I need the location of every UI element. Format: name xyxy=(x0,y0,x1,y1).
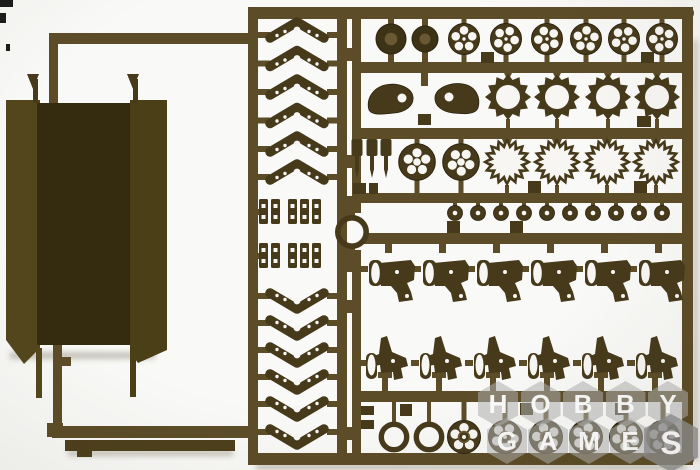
sprue-stub xyxy=(598,378,604,392)
bracket-slot xyxy=(533,263,542,284)
clip-notch xyxy=(262,215,266,219)
wheel-hole xyxy=(407,165,416,174)
clip-notch xyxy=(315,259,319,263)
hull-panel-left xyxy=(6,100,40,364)
wheel-hole xyxy=(586,42,595,51)
wheel-center-hole xyxy=(622,37,625,40)
chevron-hole xyxy=(283,58,286,61)
chevron-hole xyxy=(315,430,318,433)
clip-notch xyxy=(303,248,307,252)
left-side-tab xyxy=(62,357,71,366)
chevron-hole xyxy=(315,375,318,378)
wheel-center-hole xyxy=(544,435,548,439)
clip-part xyxy=(312,243,321,268)
wheel-center-hole xyxy=(457,158,465,166)
wheel-center-hole xyxy=(584,435,588,439)
sprocket-hole xyxy=(645,85,669,109)
left-top-runner xyxy=(52,33,250,44)
flat-bar-tab xyxy=(77,450,92,457)
sprue-stub xyxy=(385,243,392,253)
sprue-stub xyxy=(421,72,428,86)
chevron-hole xyxy=(283,434,286,437)
pin-part xyxy=(352,139,363,156)
wheel-center-hole xyxy=(413,158,421,166)
chevron-hole xyxy=(315,62,318,65)
bracket-slot xyxy=(422,355,430,376)
rail-tab xyxy=(346,300,355,313)
sprue-stub xyxy=(655,119,659,129)
sprue-stub xyxy=(493,243,500,253)
chevron-hole xyxy=(307,352,310,355)
sprue-stub xyxy=(661,401,666,422)
hub-cap-hole xyxy=(453,211,458,216)
wheel-hole xyxy=(628,36,637,45)
chevron-hole xyxy=(283,144,286,147)
wheel-hole xyxy=(503,43,512,52)
sprue-stub xyxy=(584,401,589,422)
sprue-stub xyxy=(462,401,467,422)
wheel-center-hole xyxy=(661,435,665,439)
chevron-hole xyxy=(283,30,286,33)
bottom-rail xyxy=(248,453,694,465)
solid-wheel-hub xyxy=(420,34,431,45)
wheel-hole xyxy=(664,440,673,449)
hub-cap-hole xyxy=(522,211,527,216)
sprue-stub xyxy=(544,401,549,422)
bracket-foot xyxy=(648,372,662,378)
sprocket-hole xyxy=(496,85,520,109)
sprue-stub xyxy=(255,209,259,215)
sprue-tab xyxy=(369,183,378,194)
clip-notch xyxy=(274,248,278,252)
chevron-hole xyxy=(315,148,318,151)
grid-left-rail-upper xyxy=(352,7,361,213)
chevron-hole xyxy=(283,115,286,118)
bracket-hole xyxy=(395,270,399,274)
chevron-hole xyxy=(283,379,286,382)
bracket-pivot-hole xyxy=(567,294,571,298)
hub-cap-hole xyxy=(637,211,642,216)
star-idler-hole xyxy=(538,143,577,182)
sprue-tab xyxy=(353,183,366,194)
pin-tip xyxy=(370,169,374,178)
ring-stub-top xyxy=(345,196,355,218)
wheel-hole xyxy=(534,35,543,44)
clip-notch xyxy=(262,259,266,263)
wheel-center-hole xyxy=(504,37,507,40)
wheel-hole xyxy=(614,28,623,37)
bracket-foot xyxy=(486,372,500,378)
sprue-stub xyxy=(652,378,658,392)
wheel-hole xyxy=(457,167,466,176)
panel-tail xyxy=(130,350,136,397)
chevron-hole xyxy=(275,148,278,151)
sprue-tab xyxy=(637,116,651,127)
chevron-hole xyxy=(294,379,301,386)
chevron-hole xyxy=(294,27,301,34)
chevron-hole xyxy=(283,87,286,90)
chevron-hole xyxy=(307,379,310,382)
clip-part xyxy=(300,243,309,268)
sprue-stub xyxy=(547,243,554,253)
chevron-hole xyxy=(315,119,318,122)
sprue-tab xyxy=(528,181,541,193)
chevron-hole xyxy=(307,115,310,118)
chevron-hole xyxy=(275,34,278,37)
chevron-hole xyxy=(283,406,286,409)
small-tab-part xyxy=(361,420,374,429)
chevron-hole xyxy=(307,298,310,301)
sprocket-hole xyxy=(545,85,569,109)
clip-notch xyxy=(262,248,266,252)
chevron-hole xyxy=(294,325,301,332)
chevron-hole xyxy=(307,406,310,409)
clip-part xyxy=(259,243,268,268)
wheel-hole xyxy=(421,155,430,164)
chevron-hole xyxy=(294,141,301,148)
bracket-hole xyxy=(661,359,665,363)
sprue-stub xyxy=(392,401,396,423)
bracket-slot xyxy=(587,263,596,284)
sprue-tab xyxy=(481,52,494,63)
wheel-center-hole xyxy=(660,37,663,40)
clip-part xyxy=(300,199,309,224)
grid-rail-2 xyxy=(352,128,693,139)
sprue-stub xyxy=(503,401,508,422)
bracket-foot xyxy=(378,372,392,378)
pin-stem xyxy=(370,156,374,170)
wheel-hole xyxy=(510,36,519,45)
sprue-tab xyxy=(641,52,654,63)
wheel-hole xyxy=(495,29,504,38)
small-tab-part xyxy=(361,406,374,415)
wheel-hole xyxy=(655,26,664,35)
rail-tab xyxy=(346,48,355,61)
wheel-hole xyxy=(665,30,674,39)
bracket-pivot-hole xyxy=(513,294,517,298)
wheel-center-hole xyxy=(462,37,465,40)
bracket-hole xyxy=(665,270,669,274)
clip-part xyxy=(271,243,280,268)
chevron-hole xyxy=(275,176,278,179)
solid-wheel-hub xyxy=(385,33,398,46)
sprue-stub xyxy=(601,243,608,253)
chevron-hole xyxy=(307,172,310,175)
bracket-hole xyxy=(445,359,449,363)
wheel-hole xyxy=(612,38,621,47)
photo-corner-mark xyxy=(0,0,13,7)
chevron-hole xyxy=(275,91,278,94)
left-bottom-runner xyxy=(52,426,252,438)
clip-notch xyxy=(303,215,307,219)
chevron-hole xyxy=(294,169,301,176)
pin-tip xyxy=(384,169,388,178)
ladder-left-rail xyxy=(248,7,258,465)
sprue-tab xyxy=(447,221,460,233)
wheel-center-hole xyxy=(462,435,466,439)
sprue-stub xyxy=(255,253,259,259)
chevron-hole xyxy=(275,375,278,378)
rail-tab xyxy=(346,427,355,440)
chevron-hole xyxy=(294,352,301,359)
wheel-hole xyxy=(576,41,585,50)
sprocket-hole xyxy=(596,85,620,109)
panel-tail xyxy=(36,348,42,398)
hull-panel-center xyxy=(37,103,131,345)
flat-bar-part xyxy=(65,440,235,451)
chevron-hole xyxy=(294,406,301,413)
sprue-stub xyxy=(382,378,388,392)
chevron-hole xyxy=(294,112,301,119)
chevron-hole xyxy=(315,176,318,179)
wheel-hole xyxy=(541,43,550,52)
wheel-center-hole xyxy=(545,37,548,40)
grid-rail-5 xyxy=(352,391,693,402)
left-vert-runner xyxy=(53,345,62,433)
chevron-hole xyxy=(283,298,286,301)
sprue-stub xyxy=(427,401,431,423)
wheel-hole xyxy=(404,155,413,164)
wheel-hole xyxy=(574,438,583,447)
sprue-drawing xyxy=(0,0,700,470)
chevron-hole xyxy=(315,402,318,405)
bracket-slot xyxy=(638,355,646,376)
bracket-pivot-hole xyxy=(621,294,625,298)
bracket-pivot-hole xyxy=(459,294,463,298)
clip-notch xyxy=(303,204,307,208)
ring-stub-bottom xyxy=(345,245,355,272)
bracket-slot xyxy=(425,263,434,284)
wheel-hole xyxy=(451,32,460,41)
sprue-stub xyxy=(555,119,559,129)
sprue-stub xyxy=(627,360,635,366)
hub-cap-hole xyxy=(568,211,573,216)
bracket-slot xyxy=(368,355,376,376)
chevron-hole xyxy=(307,325,310,328)
chevron-hole xyxy=(307,58,310,61)
chevron-hole xyxy=(275,294,278,297)
wheel-center-hole xyxy=(624,435,628,439)
sprue-tab xyxy=(418,114,431,125)
wheel-hole xyxy=(462,150,471,159)
wheel-hole xyxy=(628,425,637,434)
pin-stem xyxy=(384,156,388,170)
star-idler-hole xyxy=(637,143,676,182)
bracket-slot xyxy=(479,263,488,284)
rail-tab xyxy=(346,155,355,168)
sprue-stub xyxy=(573,360,581,366)
clip-notch xyxy=(291,248,295,252)
sprue-stub xyxy=(490,378,496,392)
wheel-hole xyxy=(465,160,474,169)
wheel-hole xyxy=(451,150,460,159)
bracket-pivot-hole xyxy=(675,294,679,298)
chevron-hole xyxy=(315,321,318,324)
chevron-hole xyxy=(275,119,278,122)
wheel-hole xyxy=(574,31,583,40)
top-rail xyxy=(248,7,694,19)
clip-notch xyxy=(291,204,295,208)
clip-notch xyxy=(274,215,278,219)
idler-ring xyxy=(416,424,441,449)
bracket-hole xyxy=(611,270,615,274)
chevron-hole xyxy=(275,402,278,405)
clip-notch xyxy=(291,215,295,219)
grid-rail-3 xyxy=(352,193,693,203)
bracket-hole xyxy=(503,270,507,274)
bracket-hole xyxy=(553,359,557,363)
wheel-hole xyxy=(494,426,503,435)
chevron-hole xyxy=(275,321,278,324)
chevron-hole xyxy=(315,294,318,297)
star-idler-hole xyxy=(588,143,627,182)
sprue-tab xyxy=(520,403,533,415)
clip-part xyxy=(271,199,280,224)
sprue-stub xyxy=(422,17,428,26)
wheel-hole xyxy=(468,32,477,41)
photo-corner-mark xyxy=(6,44,10,51)
clip-notch xyxy=(274,259,278,263)
sprue-stub xyxy=(519,360,527,366)
chevron-hole xyxy=(307,30,310,33)
wheel-hole xyxy=(590,33,599,42)
idler-ring xyxy=(381,424,406,449)
hub-cap-hole xyxy=(499,211,504,216)
sprue-stub xyxy=(439,243,446,253)
pin-part xyxy=(381,139,392,156)
sprue-stub xyxy=(436,378,442,392)
chevron-hole xyxy=(275,430,278,433)
wheel-hole xyxy=(655,43,664,52)
wheel-hole xyxy=(494,39,503,48)
chevron-hole xyxy=(315,91,318,94)
sprue-tab xyxy=(400,404,412,416)
teardrop-mount xyxy=(368,84,413,114)
grid-rail-1 xyxy=(352,62,693,73)
chevron-hole xyxy=(307,434,310,437)
chevron-hole xyxy=(307,144,310,147)
bracket-foot xyxy=(432,372,446,378)
clip-notch xyxy=(274,204,278,208)
bracket-slot xyxy=(641,263,650,284)
teardrop-hole xyxy=(398,94,407,103)
hub-cap-hole xyxy=(591,211,596,216)
hub-cap-hole xyxy=(660,211,665,216)
hub-cap-hole xyxy=(476,211,481,216)
sprue-stub xyxy=(655,243,662,253)
teardrop-mount xyxy=(435,84,479,114)
wheel-hole xyxy=(455,42,464,51)
chevron-hole xyxy=(294,55,301,62)
bracket-hole xyxy=(391,359,395,363)
wheel-hole xyxy=(665,40,674,49)
teardrop-hole xyxy=(445,93,454,102)
sprue-tab xyxy=(634,181,647,193)
wheel-hole xyxy=(448,160,457,169)
wheel-hole xyxy=(582,26,591,35)
hull-panel-right xyxy=(130,100,167,363)
sprue-stub xyxy=(465,360,473,366)
clip-notch xyxy=(315,248,319,252)
bracket-hole xyxy=(607,359,611,363)
star-idler-hole xyxy=(488,143,527,182)
wheel-hole xyxy=(548,438,557,447)
clip-notch xyxy=(262,204,266,208)
chevron-hole xyxy=(307,87,310,90)
wheel-hole xyxy=(460,26,469,35)
grid-rail-4 xyxy=(364,233,693,244)
bracket-slot xyxy=(584,355,592,376)
clip-notch xyxy=(315,215,319,219)
chevron-hole xyxy=(294,434,301,441)
sprue-stub xyxy=(411,360,419,366)
wheel-center-hole xyxy=(503,435,507,439)
chevron-hole xyxy=(283,172,286,175)
sprue-photo: HOBBYGAMES xyxy=(0,0,700,470)
chevron-hole xyxy=(294,298,301,305)
wheel-hole xyxy=(540,27,549,36)
wheel-hole xyxy=(649,35,658,44)
bracket-slot xyxy=(371,263,380,284)
left-top-stub xyxy=(49,33,58,103)
clip-part xyxy=(288,243,297,268)
pin-stem xyxy=(355,156,359,170)
clip-part xyxy=(288,199,297,224)
chevron-hole xyxy=(283,352,286,355)
photo-corner-mark xyxy=(0,13,6,23)
bracket-slot xyxy=(476,355,484,376)
bracket-slot xyxy=(530,355,538,376)
chevron-hole xyxy=(283,325,286,328)
sprue-tab xyxy=(510,221,523,233)
chevron-hole xyxy=(315,34,318,37)
wheel-center-hole xyxy=(584,37,587,40)
sprue-stub xyxy=(359,266,368,272)
wheel-hole xyxy=(549,29,558,38)
bracket-pivot-hole xyxy=(405,294,409,298)
sprue-stub xyxy=(359,360,366,366)
hub-cap-hole xyxy=(614,211,619,216)
pin-part xyxy=(367,139,378,156)
wheel-hole xyxy=(465,42,474,51)
bracket-hole xyxy=(449,270,453,274)
wheel-hole xyxy=(505,27,514,36)
wheel-hole xyxy=(412,148,421,157)
bracket-foot xyxy=(594,372,608,378)
sprue-stub xyxy=(544,378,550,392)
clip-part xyxy=(259,199,268,224)
clip-part xyxy=(312,199,321,224)
chevron-hole xyxy=(275,348,278,351)
bracket-foot xyxy=(540,372,554,378)
sprue-stub xyxy=(606,119,610,129)
sprue-tab xyxy=(615,403,628,415)
wheel-hole xyxy=(621,43,630,52)
wheel-hole xyxy=(550,39,559,48)
sprue-stub xyxy=(506,119,510,129)
clip-notch xyxy=(315,204,319,208)
wheel-hole xyxy=(418,165,427,174)
bracket-hole xyxy=(499,359,503,363)
bracket-hole xyxy=(557,270,561,274)
soft-shadow xyxy=(693,40,698,460)
chevron-hole xyxy=(315,348,318,351)
hub-cap-hole xyxy=(545,211,550,216)
clip-notch xyxy=(291,259,295,263)
chevron-hole xyxy=(294,84,301,91)
chevron-hole xyxy=(275,62,278,65)
clip-notch xyxy=(303,259,307,263)
